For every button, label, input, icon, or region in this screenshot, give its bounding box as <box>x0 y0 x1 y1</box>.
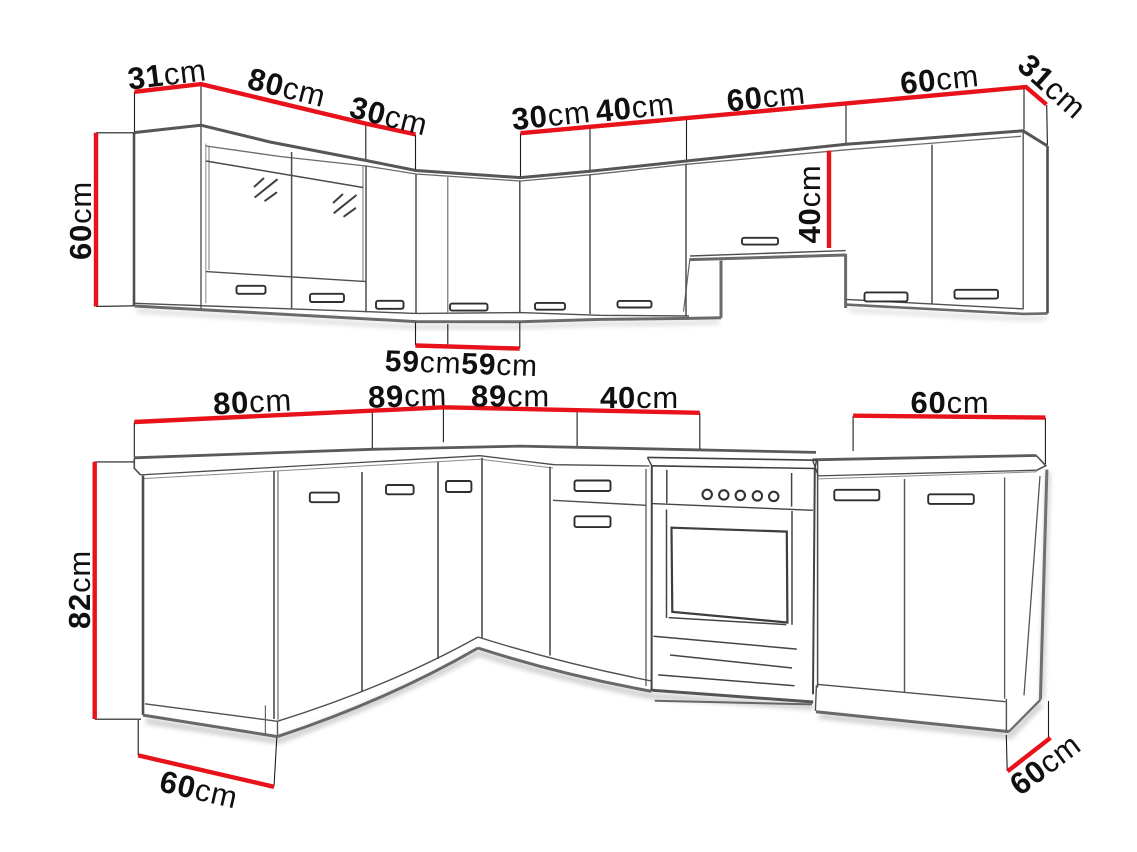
svg-text:31cm: 31cm <box>126 52 209 96</box>
svg-text:60cm: 60cm <box>1003 726 1087 802</box>
svg-text:80cm: 80cm <box>212 382 293 421</box>
svg-text:89cm: 89cm <box>367 377 447 415</box>
svg-text:60cm: 60cm <box>157 763 242 815</box>
svg-text:40cm: 40cm <box>600 380 679 415</box>
svg-text:30cm: 30cm <box>346 89 431 142</box>
svg-text:82cm: 82cm <box>62 550 97 629</box>
svg-text:40cm: 40cm <box>792 164 827 243</box>
svg-text:30cm: 30cm <box>510 93 592 136</box>
svg-text:89cm: 89cm <box>471 378 550 413</box>
svg-text:59cm59cm: 59cm59cm <box>384 344 538 382</box>
svg-text:60cm: 60cm <box>910 385 989 420</box>
svg-text:60cm: 60cm <box>725 75 807 118</box>
svg-text:60cm: 60cm <box>63 181 98 260</box>
